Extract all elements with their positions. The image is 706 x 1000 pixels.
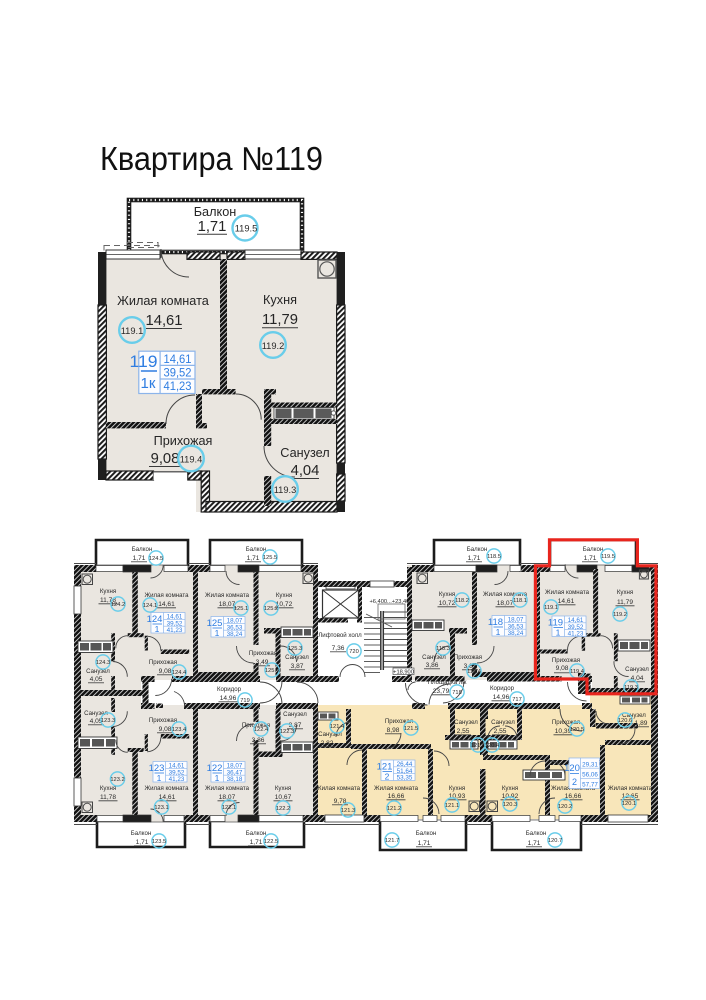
svg-text:1,71: 1,71: [468, 555, 481, 562]
svg-text:122.2: 122.2: [276, 806, 290, 812]
svg-text:121.7: 121.7: [385, 838, 399, 844]
svg-text:1,71: 1,71: [528, 840, 541, 847]
svg-text:14,61: 14,61: [164, 352, 192, 366]
svg-text:Санузел: Санузел: [86, 668, 110, 675]
svg-text:Балкон: Балкон: [583, 546, 603, 553]
svg-text:11,79: 11,79: [262, 312, 298, 328]
svg-text:Жилая комната: Жилая комната: [545, 589, 590, 596]
svg-text:122.1: 122.1: [222, 805, 236, 811]
svg-text:11,78: 11,78: [100, 794, 116, 801]
svg-text:119.1: 119.1: [544, 605, 558, 611]
svg-text:125.1: 125.1: [234, 606, 248, 612]
svg-text:1: 1: [155, 624, 160, 634]
svg-text:123.5: 123.5: [152, 839, 166, 845]
svg-text:1,89: 1,89: [635, 720, 648, 727]
svg-text:125.3: 125.3: [288, 646, 302, 652]
svg-text:Жилая комната: Жилая комната: [608, 785, 653, 792]
svg-text:123.1: 123.1: [154, 805, 168, 811]
svg-text:14,96: 14,96: [220, 695, 237, 702]
svg-text:Квартира №119: Квартира №119: [100, 140, 323, 177]
svg-text:Прихожая: Прихожая: [249, 650, 277, 657]
svg-text:119.2: 119.2: [613, 612, 627, 618]
svg-text:41,23: 41,23: [169, 776, 185, 783]
svg-text:1,71: 1,71: [133, 555, 146, 562]
svg-text:14,96: 14,96: [493, 694, 510, 701]
svg-text:1к: 1к: [141, 375, 156, 392]
svg-text:119.3: 119.3: [624, 685, 638, 691]
svg-text:10,93: 10,93: [449, 793, 466, 800]
svg-text:Балкон: Балкон: [132, 546, 152, 553]
svg-text:+6,400...+23,400: +6,400...+23,400: [369, 599, 412, 605]
svg-text:122.3: 122.3: [280, 729, 294, 735]
svg-text:Кухня: Кухня: [449, 785, 465, 792]
svg-text:119.3: 119.3: [274, 485, 297, 495]
svg-text:123.2: 123.2: [110, 777, 124, 783]
svg-text:1: 1: [215, 628, 220, 638]
svg-text:Площадка лік: Площадка лік: [428, 679, 467, 686]
svg-text:4,04: 4,04: [631, 675, 644, 682]
svg-text:120.2: 120.2: [558, 804, 572, 810]
svg-text:118.1: 118.1: [513, 598, 527, 604]
svg-text:9,08: 9,08: [159, 668, 172, 675]
svg-text:4,05: 4,05: [90, 676, 103, 683]
svg-text:18,07: 18,07: [497, 600, 514, 607]
svg-text:Балкон: Балкон: [416, 830, 436, 837]
svg-text:124.5: 124.5: [149, 556, 163, 562]
svg-text:121.4: 121.4: [330, 724, 344, 730]
svg-text:9,08: 9,08: [159, 726, 172, 733]
svg-text:Кухня: Кухня: [617, 589, 633, 596]
svg-text:719: 719: [240, 698, 250, 704]
svg-text:1: 1: [215, 773, 220, 783]
svg-text:2: 2: [385, 772, 390, 782]
svg-text:10,72: 10,72: [439, 600, 456, 607]
svg-text:118.2: 118.2: [455, 598, 469, 604]
svg-text:3,86: 3,86: [426, 662, 439, 669]
svg-text:Санузел: Санузел: [454, 719, 478, 726]
svg-text:Кухня: Кухня: [100, 588, 116, 595]
svg-text:Коридор: Коридор: [217, 686, 242, 693]
svg-text:119.2: 119.2: [262, 341, 285, 351]
svg-text:124.1: 124.1: [143, 603, 157, 609]
svg-text:14,61: 14,61: [558, 598, 575, 605]
svg-text:4,04: 4,04: [291, 463, 320, 479]
svg-text:Санузел: Санузел: [625, 666, 649, 673]
svg-text:124.2: 124.2: [111, 602, 125, 608]
svg-text:120.1: 120.1: [622, 801, 636, 807]
svg-text:41,23: 41,23: [164, 379, 192, 393]
svg-text:118.4: 118.4: [467, 669, 481, 675]
svg-text:Коридор: Коридор: [490, 685, 515, 692]
svg-text:125.5: 125.5: [263, 555, 277, 561]
svg-text:122.5: 122.5: [264, 839, 278, 845]
svg-text:11,79: 11,79: [617, 599, 633, 606]
svg-text:1,71: 1,71: [136, 839, 149, 846]
svg-text:Жилая комната: Жилая комната: [205, 785, 250, 792]
svg-text:119.4: 119.4: [570, 669, 584, 675]
svg-text:16,66: 16,66: [388, 793, 405, 800]
svg-text:119: 119: [130, 352, 158, 371]
svg-text:10,67: 10,67: [275, 794, 292, 801]
svg-text:718: 718: [452, 690, 462, 696]
svg-text:119.5: 119.5: [235, 224, 258, 234]
svg-text:124.3: 124.3: [96, 660, 110, 666]
svg-text:120.4: 120.4: [485, 743, 499, 749]
svg-text:720: 720: [349, 649, 359, 655]
svg-text:121.6: 121.6: [471, 743, 485, 749]
svg-text:1,71: 1,71: [198, 219, 227, 235]
svg-text:2,55: 2,55: [494, 728, 507, 735]
svg-text:120.6: 120.6: [618, 718, 632, 724]
svg-text:Жилая комната: Жилая комната: [144, 785, 189, 792]
svg-text:23,79: 23,79: [433, 688, 450, 695]
svg-text:Кухня: Кухня: [502, 785, 518, 792]
svg-text:Балкон: Балкон: [131, 830, 151, 837]
svg-text:Жилая комната: Жилая комната: [316, 785, 361, 792]
svg-text:121.1: 121.1: [445, 803, 459, 809]
svg-text:Балкон: Балкон: [246, 546, 266, 553]
svg-text:119.5: 119.5: [601, 554, 615, 560]
svg-text:121.5: 121.5: [404, 726, 418, 732]
svg-text:1: 1: [556, 628, 561, 638]
svg-text:Балкон: Балкон: [194, 205, 237, 219]
svg-text:53,35: 53,35: [397, 775, 413, 782]
svg-text:3,87: 3,87: [291, 663, 304, 670]
svg-text:118.5: 118.5: [487, 554, 501, 560]
svg-text:41,23: 41,23: [167, 627, 183, 634]
svg-text:Жилая комната: Жилая комната: [205, 592, 250, 599]
svg-text:Прихожая: Прихожая: [552, 657, 580, 664]
svg-text:2,82: 2,82: [321, 740, 334, 747]
svg-text:120.3: 120.3: [503, 802, 517, 808]
svg-text:38,18: 38,18: [227, 776, 243, 783]
svg-text:118.3: 118.3: [436, 646, 450, 652]
svg-text:2: 2: [572, 777, 577, 787]
svg-text:Санузел: Санузел: [280, 446, 329, 460]
svg-text:1,71: 1,71: [247, 555, 260, 562]
svg-text:1,71: 1,71: [584, 555, 597, 562]
svg-text:Прихожая: Прихожая: [149, 717, 177, 724]
svg-text:121.2: 121.2: [387, 806, 401, 812]
svg-text:Балкон: Балкон: [246, 830, 266, 837]
svg-text:Жилая комната: Жилая комната: [483, 591, 528, 598]
svg-text:Жилая комната: Жилая комната: [117, 294, 210, 308]
svg-text:Санузел: Санузел: [491, 719, 515, 726]
svg-text:38,24: 38,24: [227, 631, 243, 638]
svg-text:Кухня: Кухня: [100, 785, 116, 792]
svg-text:Кухня: Кухня: [275, 785, 291, 792]
svg-text:29,31: 29,31: [582, 762, 598, 769]
svg-text:121.3: 121.3: [341, 808, 355, 814]
svg-text:125.4: 125.4: [265, 668, 279, 674]
svg-text:Прихожая: Прихожая: [149, 659, 177, 666]
svg-text:125.2: 125.2: [264, 606, 278, 612]
svg-text:124.4: 124.4: [172, 670, 186, 676]
svg-text:Кухня: Кухня: [439, 591, 455, 598]
svg-text:Прихожая: Прихожая: [154, 434, 213, 448]
svg-text:Санузел: Санузел: [283, 711, 307, 718]
svg-text:119.1: 119.1: [121, 326, 144, 336]
svg-text:Кухня: Кухня: [263, 293, 297, 307]
svg-text:120: 120: [564, 763, 580, 774]
svg-text:Жилая комната: Жилая комната: [374, 785, 419, 792]
svg-text:717: 717: [512, 697, 522, 703]
svg-text:38,24: 38,24: [508, 630, 524, 637]
svg-text:8,98: 8,98: [387, 727, 400, 734]
svg-text:9,08: 9,08: [556, 665, 569, 672]
svg-text:Санузел: Санузел: [318, 731, 342, 738]
svg-text:39,52: 39,52: [164, 366, 192, 380]
svg-text:1: 1: [496, 627, 501, 637]
svg-text:9,08: 9,08: [151, 451, 180, 467]
svg-text:119.4: 119.4: [180, 455, 203, 465]
svg-text:1,71: 1,71: [250, 839, 263, 846]
svg-text:7,36: 7,36: [332, 645, 345, 652]
svg-text:1: 1: [157, 773, 162, 783]
svg-text:Прихожая: Прихожая: [454, 654, 482, 661]
svg-text:1,71: 1,71: [418, 840, 431, 847]
svg-text:120.7: 120.7: [548, 838, 562, 844]
svg-text:14,61: 14,61: [145, 313, 182, 329]
svg-text:57,77: 57,77: [582, 782, 598, 789]
svg-text:41,23: 41,23: [568, 631, 584, 638]
svg-text:2,55: 2,55: [457, 728, 470, 735]
svg-text:56,06: 56,06: [582, 772, 598, 779]
svg-text:Балкон: Балкон: [526, 830, 546, 837]
svg-text:Балкон: Балкон: [467, 546, 487, 553]
svg-text:3,86: 3,86: [252, 737, 265, 744]
svg-text:+18,900: +18,900: [393, 670, 414, 676]
svg-text:122.4: 122.4: [254, 727, 268, 733]
svg-text:14,61: 14,61: [158, 601, 175, 608]
svg-text:Кухня: Кухня: [276, 592, 292, 599]
svg-text:123.3: 123.3: [101, 718, 115, 724]
svg-text:123.4: 123.4: [172, 727, 186, 733]
svg-text:Лифтовой холл: Лифтовой холл: [318, 632, 362, 639]
svg-text:120.5: 120.5: [570, 727, 584, 733]
